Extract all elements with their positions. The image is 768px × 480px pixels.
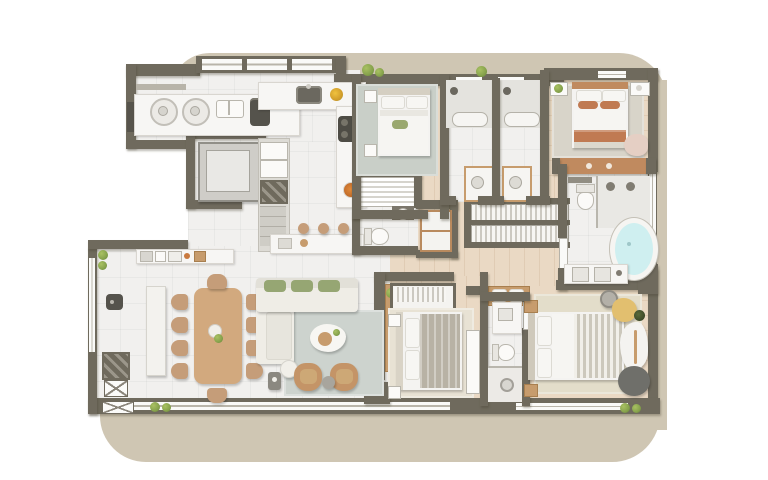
bedroom1-nightstand-1 — [364, 90, 377, 103]
wall-cabinet-handle — [110, 300, 114, 304]
island-stool-3 — [338, 223, 349, 234]
master-plant-pot — [634, 310, 645, 321]
bedroom1-duvet — [380, 110, 428, 154]
bedroom2-accent-chair — [624, 134, 648, 156]
utility-sink-divider — [228, 101, 230, 115]
master-sheet — [552, 314, 574, 378]
bathroom3-basin — [498, 308, 513, 321]
island-stool-2 — [318, 223, 329, 234]
bathrooms-bottom-wall-2 — [478, 196, 504, 205]
pantry-shelves — [358, 177, 418, 207]
terrace-plant-3 — [476, 66, 487, 77]
coffee-table-wood-tray — [318, 332, 332, 346]
master-pillow-1 — [537, 316, 552, 346]
sideboard — [146, 286, 166, 376]
bathroom3-top-wall — [480, 292, 530, 301]
dining-chair-top — [207, 274, 227, 289]
elevator-cab-inner — [206, 150, 250, 192]
service-wall-shelf — [136, 84, 186, 90]
bedroom3-pillow-1 — [405, 318, 420, 348]
bedroom2-blanket — [574, 130, 626, 142]
master-ottoman — [618, 366, 650, 396]
island-decor — [278, 238, 292, 249]
island-stool-1 — [298, 223, 309, 234]
bedroom2-wardrobe-handle-2 — [606, 163, 612, 169]
duct-xbox-1 — [104, 380, 128, 397]
bathroom3-drain — [500, 378, 514, 392]
buffet-appliance-3 — [168, 251, 182, 262]
wardrobe-bottom-bar — [468, 242, 570, 248]
master-toilet-bowl — [577, 192, 594, 210]
dining-chair-left-2 — [171, 317, 188, 333]
sofa-green-cushion-1 — [264, 280, 286, 292]
armchair-2-seat — [336, 369, 353, 384]
bathroom1-bench — [452, 112, 488, 127]
living-plant-1 — [98, 250, 108, 260]
master-vanity-basin-1 — [572, 267, 589, 282]
kitchen-flowers — [330, 88, 343, 101]
master-bath-shelf — [568, 177, 592, 183]
side-table-gray — [322, 376, 335, 389]
master-pillow-2 — [537, 348, 552, 378]
master-bathtub-drain — [627, 242, 631, 246]
service-window-1 — [202, 58, 242, 71]
dining-chair-left-1 — [171, 294, 188, 310]
master-fringe-blanket — [574, 314, 622, 378]
duct-dark-hatched — [102, 352, 130, 380]
sofa-green-cushion-3 — [318, 280, 340, 292]
bedroom3-dresser — [466, 330, 480, 394]
wardrobe-end-wall-right — [646, 158, 656, 174]
master-shower-glass — [596, 176, 598, 228]
kitchen-faucet — [306, 84, 311, 89]
bedroom3-top-wall — [374, 272, 454, 281]
cooktop-burner-1 — [341, 119, 348, 126]
utility-sink — [216, 100, 244, 118]
bedroom2-nightstand-plant — [554, 84, 563, 93]
oven — [260, 142, 288, 160]
bedroom2-accent-pillow-2 — [600, 101, 620, 109]
living-bottom-window — [134, 401, 450, 411]
master-vanity-decor — [616, 270, 622, 276]
powder-toilet-bowl — [371, 228, 389, 245]
master-bottom-window — [516, 402, 628, 411]
island-plate — [300, 239, 308, 247]
buffet-decor-wood — [194, 251, 206, 262]
bedroom2-accent-pillow-1 — [578, 101, 598, 109]
microwave — [260, 160, 288, 178]
bathrooms-right-wall — [540, 70, 549, 202]
bedroom3-blanket — [420, 314, 460, 388]
dining-chair-right-4 — [246, 363, 263, 379]
bathroom2-basin — [509, 176, 522, 189]
elevator-left-wall — [186, 130, 195, 208]
bedroom2-wardrobe — [558, 158, 650, 174]
bathrooms-bottom-wall-1 — [440, 196, 456, 205]
master-shower-head-2 — [626, 182, 635, 191]
buffet-appliance-2 — [155, 251, 166, 262]
bedroom2-window — [598, 70, 626, 79]
bathrooms-bottom-wall-3 — [526, 196, 550, 205]
bedroom1-green-throw — [392, 120, 408, 129]
service-bottom-wall — [126, 140, 192, 149]
terrace-plant-2 — [375, 68, 384, 77]
bedroom3-pillow-2 — [405, 350, 420, 380]
bedroom2-wardrobe-handle-1 — [586, 163, 592, 169]
living-plant-2 — [98, 261, 107, 270]
dining-chair-left-3 — [171, 340, 188, 356]
bathroom2-bench — [504, 112, 540, 127]
magazine-rack-decor — [272, 377, 277, 382]
master-vanity-basin-2 — [594, 267, 611, 282]
bedroom2-duvet — [574, 110, 626, 130]
buffet-appliance-1 — [140, 251, 153, 262]
service-window-3 — [292, 58, 332, 71]
master-bath-left-wall — [558, 164, 567, 238]
buffet-decor-orange — [184, 253, 190, 259]
bedroom1-pillow-2 — [406, 96, 428, 109]
bottom-plant-1 — [150, 402, 160, 412]
bathrooms-divider-wall — [492, 78, 500, 202]
bathroom1-basin — [471, 176, 484, 189]
duct-xbox-2 — [102, 401, 134, 414]
coffee-table-plant — [333, 329, 340, 336]
master-nightstand-1 — [524, 300, 538, 313]
dining-centerpiece-plant — [214, 334, 223, 343]
bottom-plant-3 — [620, 403, 630, 413]
powder-bottom-wall — [352, 246, 418, 255]
left-window — [88, 258, 96, 352]
armchair-1-seat — [300, 369, 317, 384]
bedroom3-nightstand-2 — [388, 386, 401, 399]
bathroom2-shower-head — [503, 87, 511, 95]
service-top-wall — [126, 64, 200, 76]
washer-2-door — [190, 106, 200, 116]
bedroom2-headboard — [572, 82, 628, 89]
dining-chair-left-4 — [171, 363, 188, 379]
bottom-plant-4 — [632, 404, 641, 413]
wall-cabinet-dark — [106, 294, 123, 310]
bedroom1-pillow-1 — [381, 96, 405, 109]
service-shaft — [260, 180, 288, 204]
bedroom2-bed-foot — [574, 142, 626, 148]
bedroom1-headboard — [378, 88, 430, 95]
master-shower-head-1 — [606, 182, 615, 191]
bathroom3-toilet-bowl — [498, 344, 515, 361]
master-chaise-wood-slat — [634, 330, 637, 364]
master-headboard — [528, 312, 535, 380]
linen-cabinet-2 — [420, 230, 452, 252]
master-nightstand-2 — [524, 384, 538, 397]
bathroom1-shower-head — [450, 87, 458, 95]
washer-1-door — [158, 106, 168, 116]
sofa-chaise-cushion — [266, 312, 292, 360]
cooktop-burner-3 — [341, 131, 348, 138]
bedroom2-nightstand-decor — [636, 85, 642, 91]
master-pouf — [612, 298, 637, 322]
terrace-plant-1 — [362, 64, 374, 76]
bottom-plant-2 — [162, 403, 171, 412]
bedroom1-bottom-wall — [352, 210, 428, 219]
living-top-wall — [88, 240, 188, 249]
floor-plan-canvas — [0, 0, 768, 480]
bedroom1-nightstand-2 — [364, 144, 377, 157]
service-window-2 — [247, 58, 287, 71]
bathroom3-shower-glass — [488, 366, 522, 368]
bedroom3-wardrobe-clothes — [394, 287, 446, 302]
sofa-green-cushion-2 — [291, 280, 313, 292]
bedroom3-nightstand-1 — [388, 314, 401, 327]
dining-chair-bottom — [207, 388, 227, 403]
